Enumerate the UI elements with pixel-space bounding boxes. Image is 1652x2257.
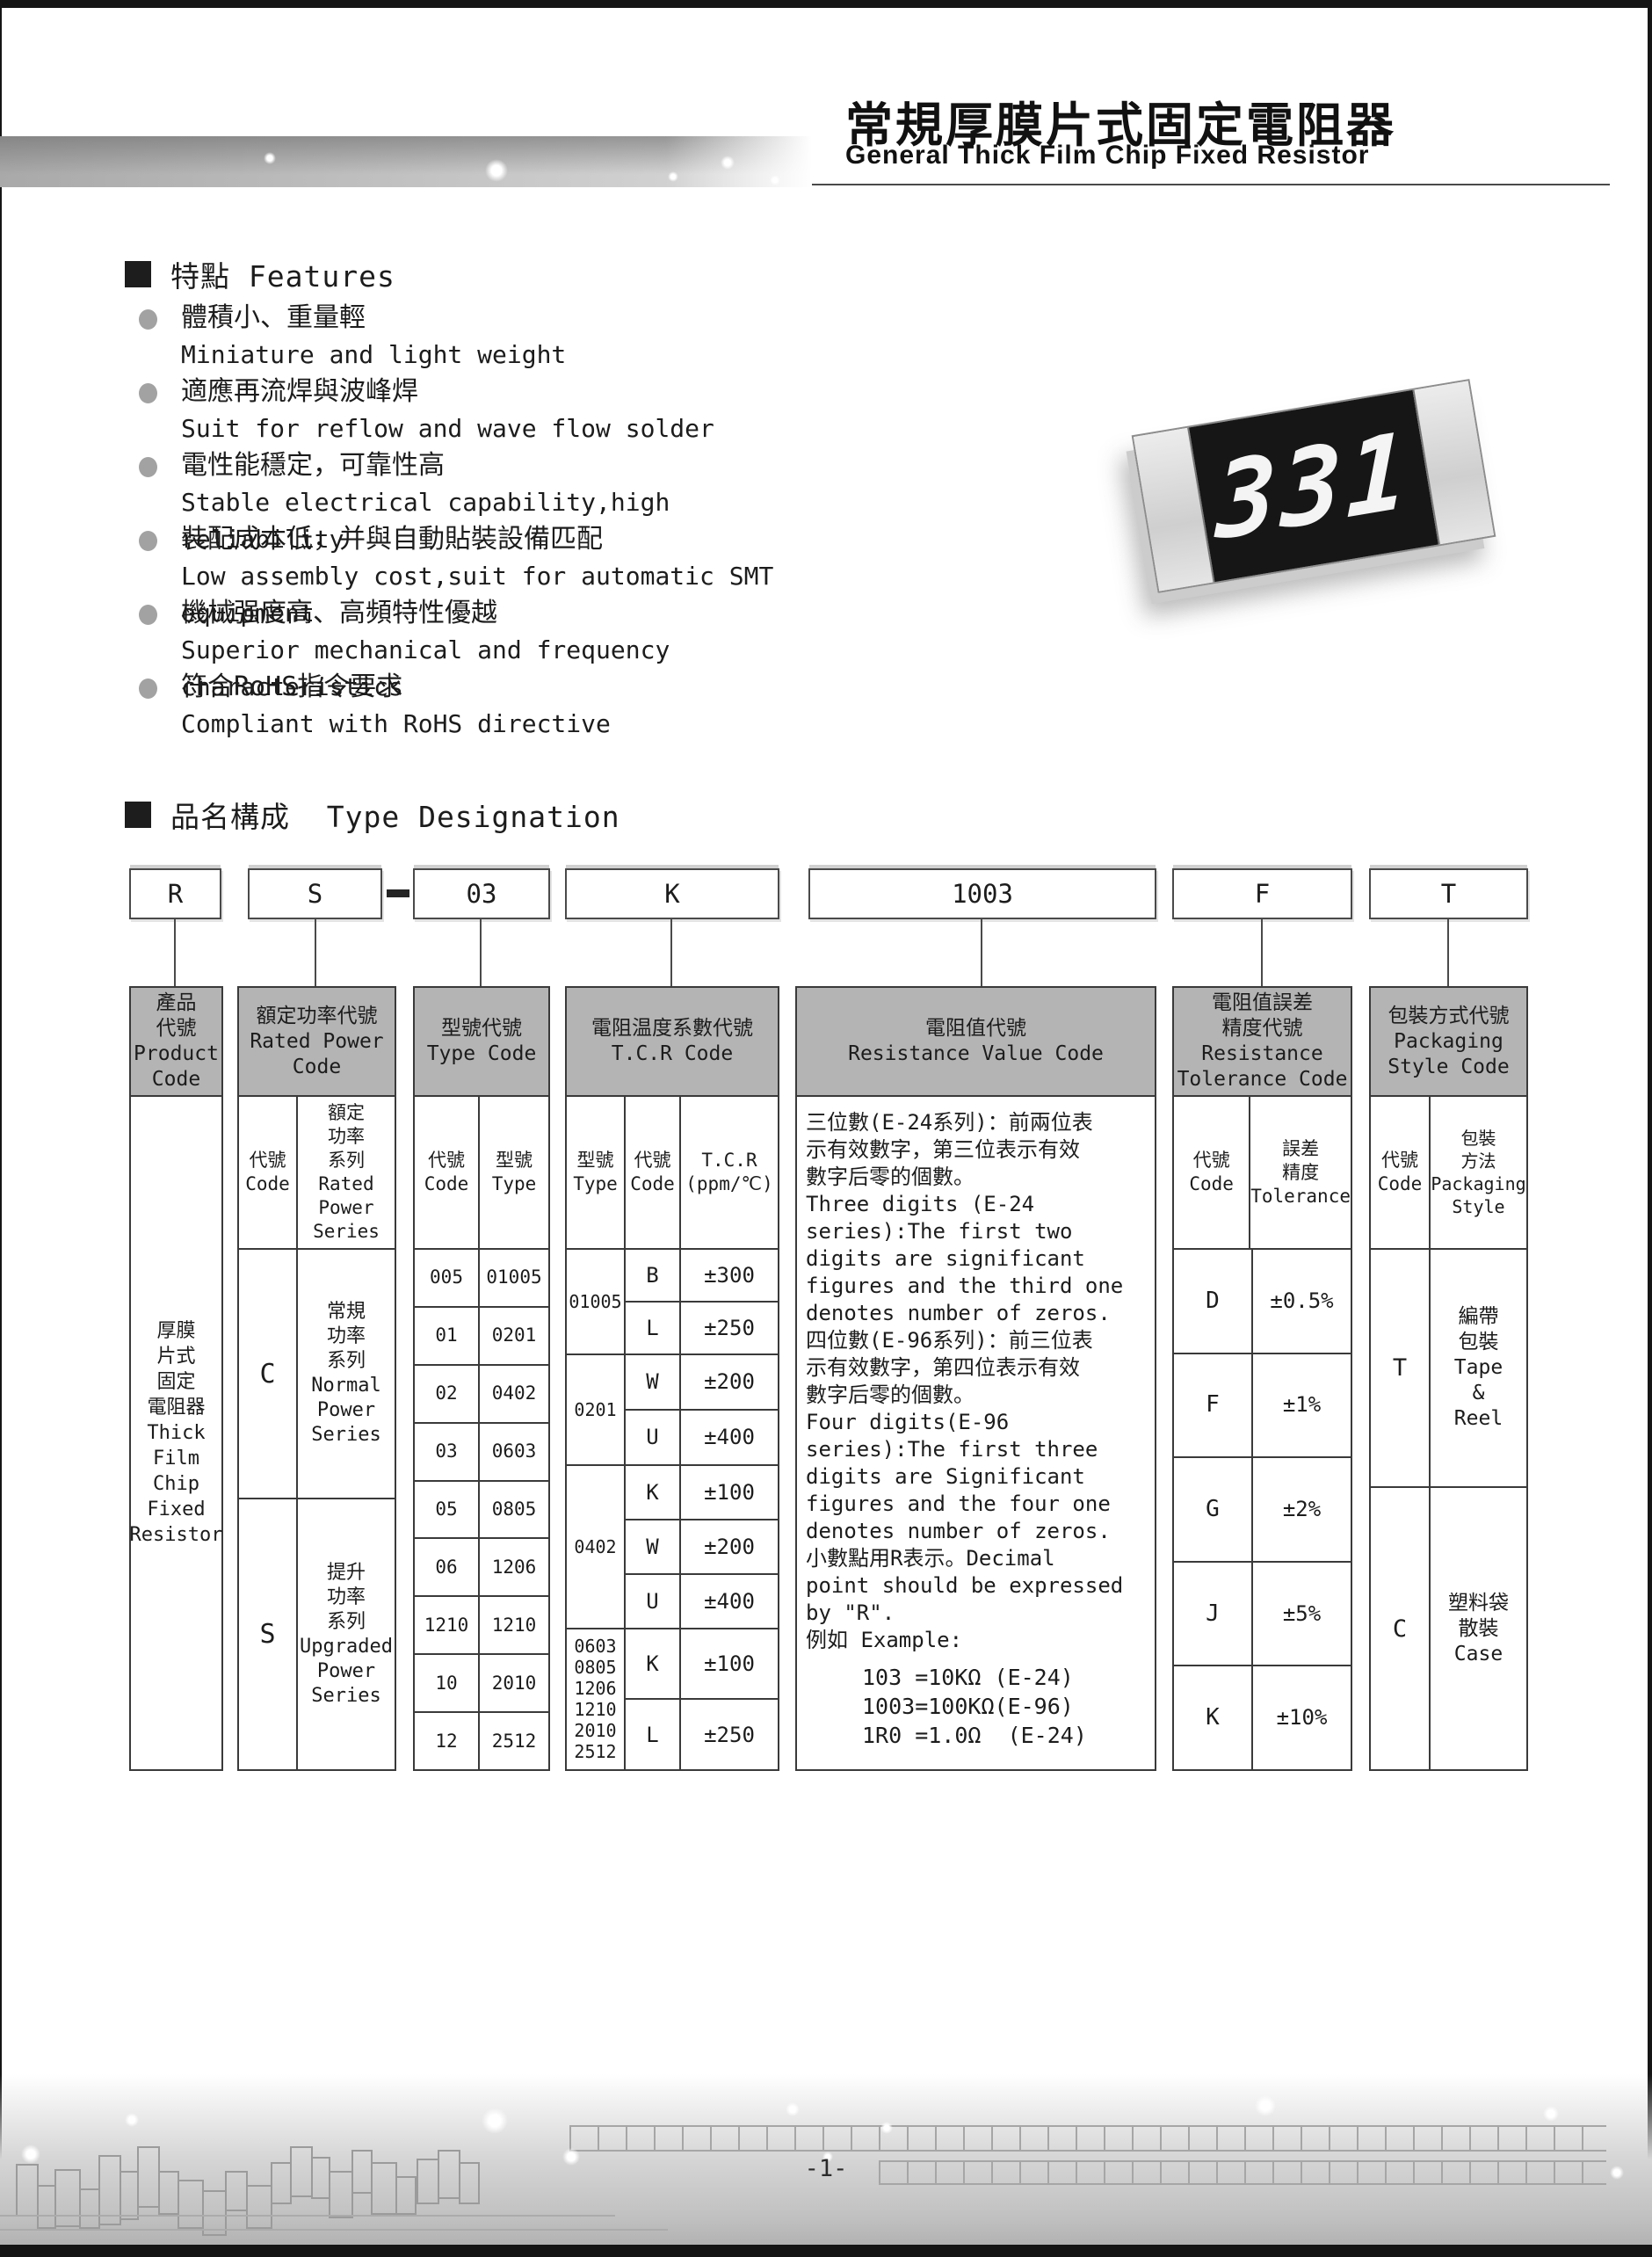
table-row: L±250 (626, 1301, 778, 1353)
left-border-line (0, 0, 2, 2257)
column-header: 電阻值代號 Resistance Value Code (797, 988, 1155, 1097)
section-marker-square (125, 261, 151, 287)
chip-body: 331 (1189, 390, 1438, 582)
type-code-cell: 05 (415, 1482, 480, 1538)
bullet-icon (139, 679, 157, 699)
type-code-cell: 03 (415, 1424, 480, 1480)
tcr-code-cell: B (626, 1250, 681, 1301)
tcr-code-cell: K (626, 1466, 681, 1519)
rated-power-code: C (239, 1250, 298, 1498)
column-header: 電阻值誤差 精度代號 Resistance Tolerance Code (1174, 988, 1351, 1097)
tcr-code-cell: U (626, 1575, 681, 1628)
tcr-value-cell: ±400 (681, 1575, 778, 1628)
packaging-column: 包裝方式代號 Packaging Style Code 代號 Code 包裝 方… (1369, 986, 1528, 1771)
tolerance-value-cell: ±0.5% (1253, 1250, 1351, 1353)
table-row: J±5% (1174, 1561, 1351, 1666)
tcr-value-cell: ±250 (681, 1303, 778, 1353)
sparkle-dot (125, 2113, 139, 2127)
tolerance-value-cell: ±10% (1253, 1666, 1351, 1769)
tolerance-code-cell: D (1174, 1250, 1253, 1353)
footer-decoration (0, 2229, 668, 2231)
table-row: 102010 (415, 1653, 548, 1711)
table-row: F±1% (1174, 1353, 1351, 1457)
tcr-group: 01005 B±300 L±250 (567, 1250, 778, 1353)
tolerance-column: 電阻值誤差 精度代號 Resistance Tolerance Code 代號 … (1172, 986, 1352, 1771)
type-size-cell: 0201 (480, 1308, 548, 1364)
table-row: T 編帶 包裝 Tape & Reel (1371, 1250, 1526, 1488)
top-border-bar (0, 0, 1652, 8)
type-code-cell: 06 (415, 1539, 480, 1595)
table-row: U±400 (626, 1409, 778, 1464)
code-box-tolerance: F (1172, 868, 1352, 919)
bullet-icon (139, 383, 157, 403)
page-number: -1- (0, 2155, 1652, 2182)
table-row: 061206 (415, 1537, 548, 1595)
type-size-cell: 0603 (480, 1424, 548, 1480)
resistance-value-description: 三位數(E-24系列)：前兩位表 示有效數字，第三位表示有效 數字后零的個數。 … (797, 1097, 1155, 1654)
table-row: 050805 (415, 1480, 548, 1538)
feature-text-en: Superior mechanical and frequency charac… (132, 632, 800, 669)
sub-header-code: 代號 Code (239, 1097, 298, 1248)
datasheet-page: 常規厚膜片式固定電阻器 General Thick Film Chip Fixe… (0, 0, 1652, 2257)
connector-line (480, 919, 482, 986)
footer-decoration (37, 2185, 56, 2229)
list-item: 電性能穩定，可靠性高 Stable electrical capability,… (132, 447, 800, 521)
packaging-code-cell: T (1371, 1250, 1431, 1486)
table-row: K±10% (1174, 1665, 1351, 1769)
tcr-column: 電阻温度系數代號 T.C.R Code 型號 Type 代號 Code T.C.… (565, 986, 779, 1771)
type-designation-heading-label: 品名構成 Type Designation (170, 794, 620, 836)
tolerance-code-cell: J (1174, 1563, 1253, 1666)
right-border-line (1648, 0, 1652, 2257)
tcr-type-cell: 0603 0805 1206 1210 2010 2512 (567, 1629, 626, 1769)
code-box-product: R (129, 868, 221, 919)
resistance-value-examples: 103 =10KΩ (E-24) 1003=100KΩ(E-96) 1R0 =1… (797, 1654, 1155, 1750)
code-box-type: 03 (413, 868, 550, 919)
type-size-cell: 2512 (480, 1713, 548, 1769)
tcr-group: 0201 W±200 U±400 (567, 1353, 778, 1464)
table-row: L±250 (626, 1698, 778, 1769)
sparkle-dot (482, 2108, 508, 2134)
type-code-cell: 01 (415, 1308, 480, 1364)
tcr-code-cell: W (626, 1520, 681, 1573)
table-row: K±100 (626, 1629, 778, 1699)
connector-line (1261, 919, 1263, 986)
table-row: 00501005 (415, 1250, 548, 1306)
sparkle-dot (770, 175, 780, 185)
tolerance-value-cell: ±2% (1253, 1458, 1351, 1561)
table-row: G±2% (1174, 1456, 1351, 1561)
sub-header-code: 代號 Code (1174, 1097, 1250, 1248)
table-row: W±200 (626, 1519, 778, 1573)
features-list: 體積小、重量輕 Miniature and light weight 適應再流焊… (132, 300, 800, 743)
footer-decoration (0, 2215, 615, 2217)
type-size-cell: 0805 (480, 1482, 548, 1538)
section-marker-square (125, 802, 151, 828)
feature-text-cn: 裝配成本低，并與自動貼裝設備匹配 (181, 524, 603, 555)
chip-marking: 331 (1215, 408, 1411, 563)
rated-power-series: 提升 功率 系列 Upgraded Power Series (298, 1499, 395, 1769)
sub-header-code: 代號 Code (1371, 1097, 1431, 1248)
bottom-border-bar (0, 2245, 1652, 2257)
feature-text-en: Low assembly cost,suit for automatic SMT… (132, 558, 800, 595)
tcr-value-cell: ±400 (681, 1411, 778, 1464)
sparkle-dot (264, 152, 276, 164)
sub-header-code: 代號 Code (415, 1097, 480, 1248)
packaging-style-cell: 編帶 包裝 Tape & Reel (1431, 1250, 1526, 1486)
feature-text-en: Stable electrical capability,high reliab… (132, 484, 800, 521)
table-row: C 常規 功率 系列 Normal Power Series (239, 1250, 395, 1499)
type-code-cell: 1210 (415, 1597, 480, 1653)
feature-text-cn: 符合RoHS指令要求 (181, 671, 402, 702)
footer-decoration (79, 2188, 100, 2229)
tcr-group: 0402 K±100 W±200 U±400 (567, 1464, 778, 1628)
type-code-cell: 12 (415, 1713, 480, 1769)
tcr-value-cell: ±100 (681, 1466, 778, 1519)
sub-header-type: 型號 Type (567, 1097, 626, 1248)
resistance-value-column: 電阻值代號 Resistance Value Code 三位數(E-24系列)：… (795, 986, 1156, 1771)
column-header: 產品 代號 Product Code (131, 988, 221, 1097)
list-item: 裝配成本低，并與自動貼裝設備匹配 Low assembly cost,suit … (132, 521, 800, 595)
table-row: 122512 (415, 1711, 548, 1769)
packaging-code-cell: C (1371, 1488, 1431, 1769)
rated-power-column: 額定功率代號 Rated Power Code 代號 Code 額定 功率 系列… (237, 986, 396, 1771)
tcr-type-cell: 0201 (567, 1355, 626, 1464)
tolerance-value-cell: ±1% (1253, 1354, 1351, 1457)
table-row: W±200 (626, 1355, 778, 1409)
title-underline (812, 184, 1610, 185)
tcr-type-cell: 0402 (567, 1466, 626, 1628)
type-size-cell: 2010 (480, 1655, 548, 1711)
sparkle-dot (786, 2102, 800, 2116)
table-row: 010201 (415, 1306, 548, 1364)
column-header: 電阻温度系數代號 T.C.R Code (567, 988, 778, 1097)
code-box-resistance-value: 1003 (808, 868, 1156, 919)
bullet-icon (139, 457, 157, 477)
list-item: 適應再流焊與波峰焊 Suit for reflow and wave flow … (132, 374, 800, 447)
tolerance-value-cell: ±5% (1253, 1563, 1351, 1666)
tolerance-code-cell: K (1174, 1666, 1253, 1769)
sub-header-series: 額定 功率 系列 Rated Power Series (298, 1097, 395, 1248)
header-gradient-band (0, 136, 812, 187)
table-row: C 塑料袋 散裝 Case (1371, 1488, 1526, 1769)
tcr-code-cell: W (626, 1355, 681, 1409)
bullet-icon (139, 605, 157, 625)
tcr-code-cell: K (626, 1629, 681, 1699)
code-box-packaging: T (1369, 868, 1528, 919)
feature-text-en: Suit for reflow and wave flow solder (132, 410, 800, 447)
connector-line (315, 919, 316, 986)
type-designation-heading: 品名構成 Type Designation (125, 794, 620, 836)
rated-power-code: S (239, 1499, 298, 1769)
sub-header-code: 代號 Code (626, 1097, 681, 1248)
connector-line (1447, 919, 1449, 986)
column-header: 型號代號 Type Code (415, 988, 548, 1097)
type-size-cell: 1206 (480, 1539, 548, 1595)
code-separator-dash (387, 889, 409, 897)
code-box-rated-power: S (248, 868, 382, 919)
tcr-type-cell: 01005 (567, 1250, 626, 1353)
list-item: 體積小、重量輕 Miniature and light weight (132, 300, 800, 374)
sub-header-type: 型號 Type (480, 1097, 548, 1248)
list-item: 符合RoHS指令要求 Compliant with RoHS directive (132, 669, 800, 743)
tcr-code-cell: L (626, 1303, 681, 1353)
type-size-cell: 0402 (480, 1366, 548, 1422)
table-row: D±0.5% (1174, 1250, 1351, 1353)
tcr-code-cell: U (626, 1411, 681, 1464)
table-row: 020402 (415, 1364, 548, 1422)
sub-header-tolerance: 誤差 精度 Tolerance (1250, 1097, 1351, 1248)
connector-line (670, 919, 672, 986)
footer-decoration (569, 2125, 1606, 2152)
column-header: 包裝方式代號 Packaging Style Code (1371, 988, 1526, 1097)
type-code-cell: 005 (415, 1250, 480, 1306)
tcr-value-cell: ±200 (681, 1355, 778, 1409)
type-size-cell: 1210 (480, 1597, 548, 1653)
feature-text-cn: 機械强度高、高頻特性優越 (181, 598, 497, 628)
type-code-cell: 10 (415, 1655, 480, 1711)
table-row: B±300 (626, 1250, 778, 1301)
feature-text-cn: 體積小、重量輕 (181, 302, 366, 333)
footer-decoration (178, 2180, 204, 2229)
table-row: 030603 (415, 1422, 548, 1480)
tcr-value-cell: ±100 (681, 1629, 778, 1699)
code-box-tcr: K (565, 868, 779, 919)
type-code-column: 型號代號 Type Code 代號 Code 型號 Type 00501005 … (413, 986, 550, 1771)
page-subtitle: General Thick Film Chip Fixed Resistor (845, 141, 1369, 171)
product-code-body: 厚膜 片式 固定 電阻器 Thick Film Chip Fixed Resis… (131, 1097, 221, 1769)
footer-decoration (246, 2185, 272, 2229)
connector-line (174, 919, 176, 986)
tcr-value-cell: ±250 (681, 1700, 778, 1769)
table-row: S 提升 功率 系列 Upgraded Power Series (239, 1499, 395, 1769)
feature-text-cn: 電性能穩定，可靠性高 (181, 450, 445, 481)
sparkle-dot (668, 171, 678, 182)
bullet-icon (139, 531, 157, 551)
rated-power-series: 常規 功率 系列 Normal Power Series (298, 1250, 395, 1498)
column-header: 額定功率代號 Rated Power Code (239, 988, 395, 1097)
feature-text-cn: 適應再流焊與波峰焊 (181, 376, 418, 407)
sparkle-dot (485, 159, 508, 182)
tolerance-code-cell: F (1174, 1354, 1253, 1457)
feature-text-en: Miniature and light weight (132, 337, 800, 374)
product-code-column: 產品 代號 Product Code 厚膜 片式 固定 電阻器 Thick Fi… (129, 986, 223, 1771)
sparkle-dot (1255, 2095, 1276, 2116)
sparkle-dot (721, 156, 735, 170)
packaging-style-cell: 塑料袋 散裝 Case (1431, 1488, 1526, 1769)
type-size-cell: 01005 (480, 1250, 548, 1306)
sparkle-dot (1543, 2106, 1559, 2122)
features-section-heading: 特點 Features (125, 253, 395, 295)
sparkle-dot (880, 2122, 893, 2134)
tolerance-code-cell: G (1174, 1458, 1253, 1561)
tcr-group: 0603 0805 1206 1210 2010 2512 K±100 L±25… (567, 1628, 778, 1769)
sub-header-tcr: T.C.R (ppm/℃) (681, 1097, 778, 1248)
bullet-icon (139, 309, 157, 330)
table-row: U±400 (626, 1573, 778, 1628)
features-heading-label: 特點 Features (170, 253, 395, 295)
tcr-code-cell: L (626, 1700, 681, 1769)
sub-header-style: 包裝 方法 Packaging Style (1431, 1097, 1526, 1248)
resistor-photo: 331 (1132, 379, 1496, 593)
type-code-cell: 02 (415, 1366, 480, 1422)
connector-line (981, 919, 982, 986)
tcr-value-cell: ±200 (681, 1520, 778, 1573)
table-row: K±100 (626, 1466, 778, 1519)
tcr-value-cell: ±300 (681, 1250, 778, 1301)
list-item: 機械强度高、高頻特性優越 Superior mechanical and fre… (132, 595, 800, 669)
table-row: 12101210 (415, 1595, 548, 1653)
feature-text-en: Compliant with RoHS directive (132, 706, 800, 743)
